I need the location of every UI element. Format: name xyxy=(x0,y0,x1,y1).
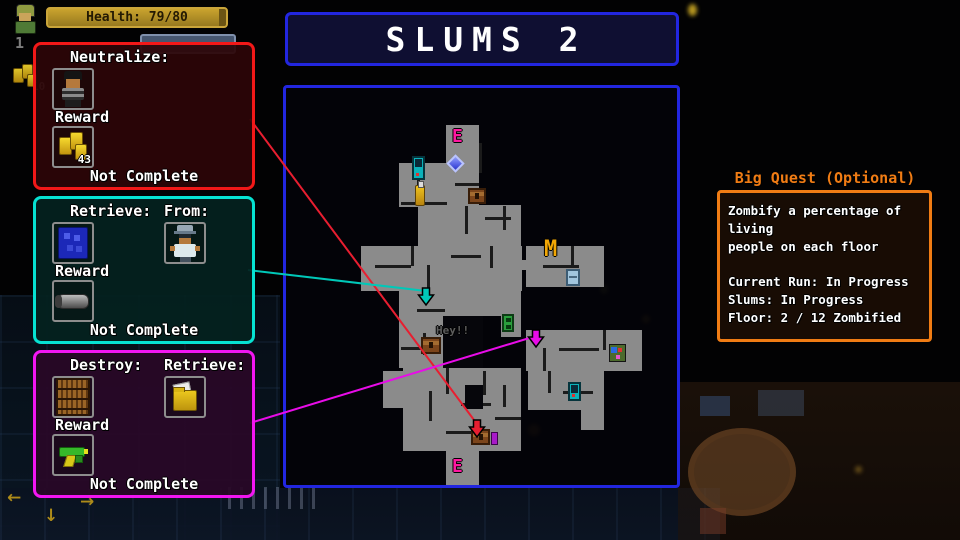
light-glow xyxy=(688,4,697,16)
scientist-legs xyxy=(180,257,191,262)
map-wall xyxy=(543,348,546,371)
map-wall xyxy=(490,246,493,268)
background-chair xyxy=(700,508,726,534)
reward-label: Reward xyxy=(55,416,109,434)
avatar-face xyxy=(19,13,31,21)
quest-action-label: Retrieve: xyxy=(70,202,151,220)
quest-status: Not Complete xyxy=(36,167,252,185)
crate-icon xyxy=(56,378,90,416)
scientist-icon xyxy=(170,225,200,262)
quest-source-label: From: xyxy=(164,202,209,220)
big-quest-panel: Zombify a percentage of living people on… xyxy=(717,190,932,342)
background-dresser xyxy=(758,390,804,416)
map-vending-marker xyxy=(568,382,581,401)
big-quest-title: Big Quest (Optional) xyxy=(718,169,932,187)
quest-source-slot xyxy=(164,222,206,264)
map-wall xyxy=(571,246,574,266)
big-quest-body: Zombify a percentage of living people on… xyxy=(728,202,921,326)
thief-face xyxy=(66,79,80,88)
quest-action-label: Destroy: xyxy=(70,356,142,374)
folder-icon xyxy=(171,383,199,412)
quest-target-slot xyxy=(52,376,94,418)
level-title: SLUMS 2 xyxy=(376,20,587,59)
map-wall xyxy=(451,255,481,258)
quest-item-slot xyxy=(52,222,94,264)
avatar-body xyxy=(15,21,36,34)
map-room xyxy=(361,246,522,291)
map-wall xyxy=(429,391,432,421)
map-wall xyxy=(375,265,411,268)
map-wall xyxy=(417,309,445,312)
thief-icon xyxy=(58,71,88,107)
map-wall xyxy=(427,265,430,291)
quest-panel-neutralize: Neutralize: Reward 43 Not Complete xyxy=(33,42,255,190)
map-wall xyxy=(495,417,521,420)
map-fridge-marker xyxy=(566,269,580,286)
map-wall xyxy=(548,371,551,393)
reward-label: Reward xyxy=(55,108,109,126)
gun-tip xyxy=(84,449,88,454)
reward-slot: 43 xyxy=(52,126,94,168)
background-bed xyxy=(700,396,730,416)
light-glow xyxy=(855,466,862,473)
map-wall xyxy=(455,183,479,186)
map-room xyxy=(581,410,604,430)
reward-amount: 43 xyxy=(78,153,91,166)
scientist-coat xyxy=(174,244,196,257)
map-room xyxy=(383,371,403,408)
map-wall xyxy=(503,385,506,407)
background-table xyxy=(688,428,796,516)
water-pistol-icon xyxy=(58,443,88,467)
game-map-screen: { "hud": { "health_label": "Health: 79/8… xyxy=(0,0,960,540)
health-label: Health: 79/80 xyxy=(86,10,188,25)
reward-slot xyxy=(52,434,94,476)
map-canvas: EMEHey!! xyxy=(283,85,680,488)
map-purple-marker xyxy=(491,432,498,445)
gun-magazine xyxy=(75,455,83,463)
slot-number: 1 xyxy=(15,34,24,52)
map-greenbox-marker xyxy=(502,314,514,332)
map-letter-marker: E xyxy=(452,456,463,477)
health-bar: Health: 79/80 xyxy=(46,7,228,28)
map-chest-marker xyxy=(471,429,490,445)
map-wall xyxy=(503,206,506,230)
map-dark-area xyxy=(465,385,483,409)
map-wall xyxy=(603,330,606,350)
blueprint-icon xyxy=(58,227,88,259)
player-avatar xyxy=(12,4,38,33)
quest-status: Not Complete xyxy=(36,321,252,339)
floor-arrow-left: ← xyxy=(7,488,21,508)
map-chest-marker xyxy=(421,337,441,354)
silencer-icon xyxy=(57,294,89,309)
thief-body xyxy=(62,88,84,100)
reward-slot xyxy=(52,280,94,322)
scientist-hand xyxy=(170,246,175,251)
map-wall xyxy=(479,143,482,173)
quest-target-slot xyxy=(52,68,94,110)
map-letter-marker: M xyxy=(544,237,557,262)
map-letter-marker: E xyxy=(452,126,463,147)
map-wall xyxy=(465,206,468,234)
quest-retrieve-label: Retrieve: xyxy=(164,356,245,374)
quest-panel-destroy: Destroy: Retrieve: Reward Not Complete xyxy=(33,350,255,498)
map-wall xyxy=(411,246,414,266)
quest-panel-retrieve: Retrieve: From: Reward Not Complete xyxy=(33,196,255,344)
thief-legs xyxy=(65,100,81,107)
map-room xyxy=(403,368,521,451)
floor-arrow-down: ↓ xyxy=(44,506,58,526)
map-bottle-marker xyxy=(415,185,425,206)
scientist-hand xyxy=(195,246,200,251)
coins-icon: 43 xyxy=(57,131,89,163)
map-wall xyxy=(483,371,486,395)
map-arcade-marker xyxy=(609,344,626,362)
map-wall xyxy=(485,217,511,220)
map-vending-marker xyxy=(412,156,425,180)
quest-status: Not Complete xyxy=(36,475,252,493)
map-chest-marker xyxy=(468,188,486,204)
map-letter-marker: Hey!! xyxy=(436,324,469,337)
scientist-face xyxy=(179,238,191,244)
folder-front xyxy=(173,390,197,411)
map-wall xyxy=(559,348,599,351)
map-wall xyxy=(446,368,449,394)
quest-action-label: Neutralize: xyxy=(70,48,169,66)
reward-label: Reward xyxy=(55,262,109,280)
level-title-panel: SLUMS 2 xyxy=(285,12,679,66)
quest-item-slot xyxy=(164,376,206,418)
